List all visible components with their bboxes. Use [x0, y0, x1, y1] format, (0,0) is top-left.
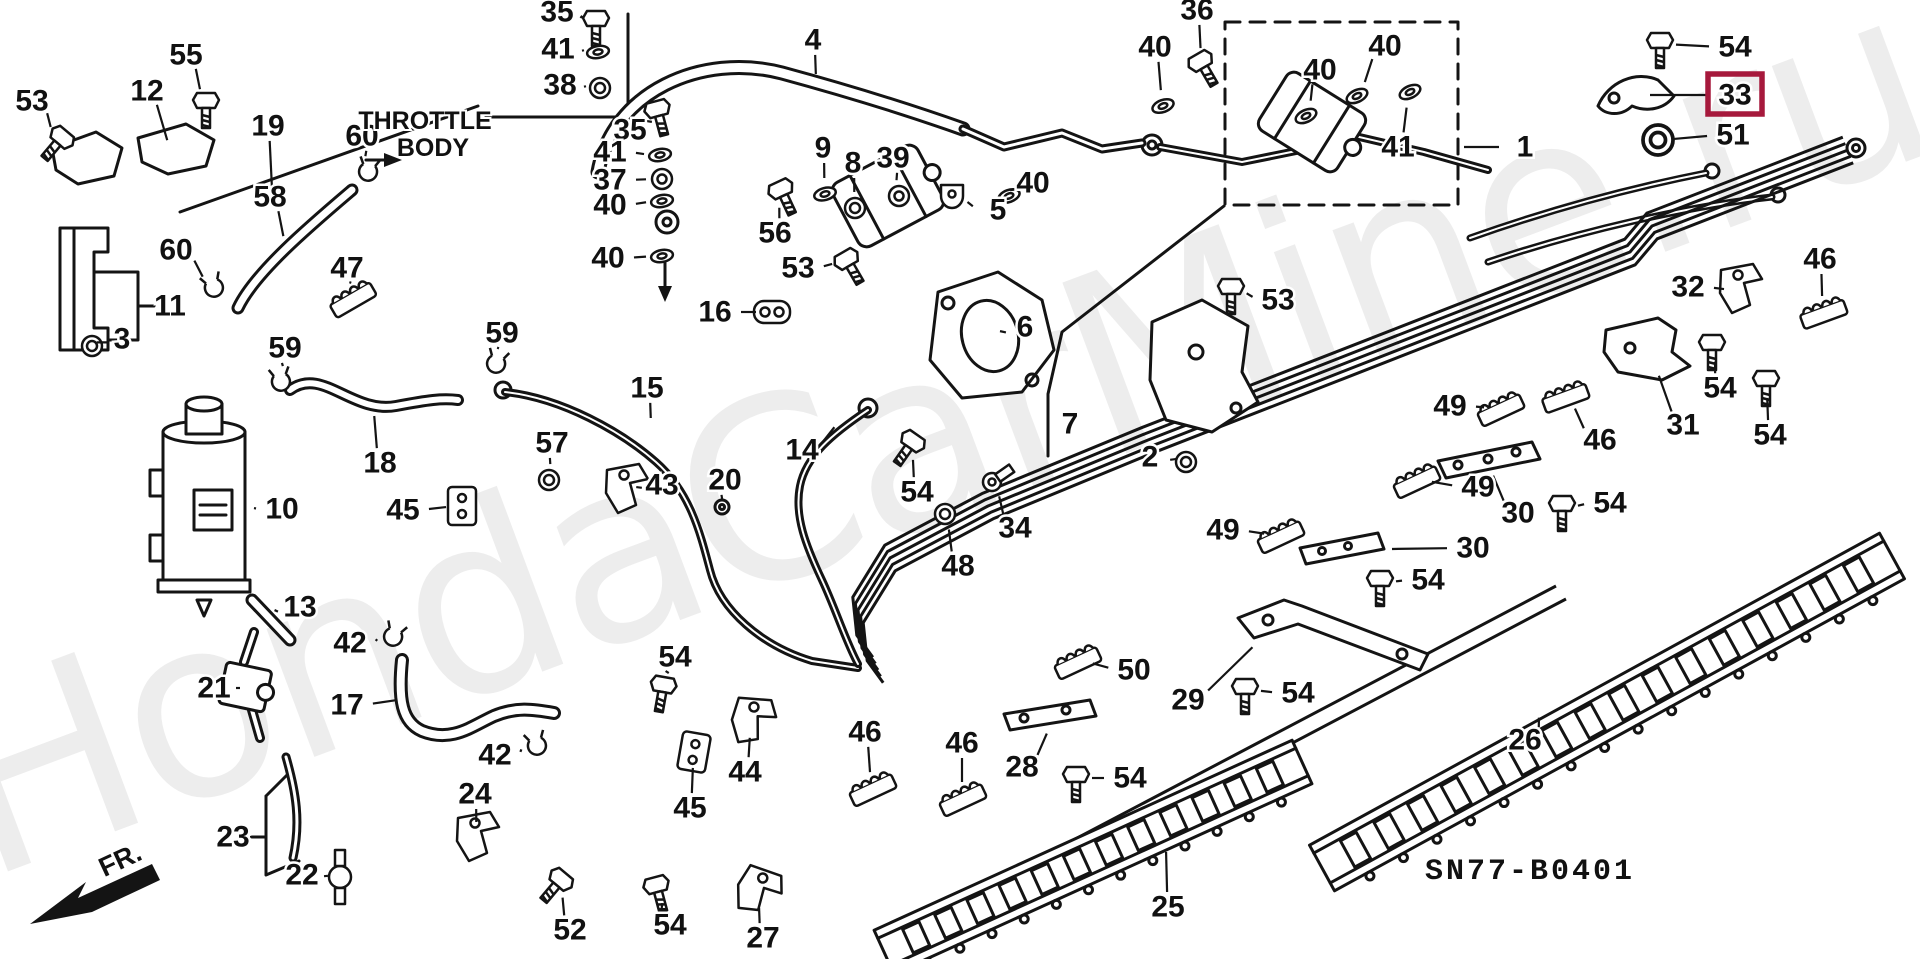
throttle-body-label-line2: BODY: [397, 134, 470, 162]
part-icon-nut: [889, 186, 909, 206]
part-callout-31[interactable]: 31: [1666, 409, 1699, 442]
part-callout-17[interactable]: 17: [330, 689, 363, 722]
diagram-canvas: HondaCarMine.ru: [0, 0, 1920, 959]
leader-line: [634, 257, 646, 258]
part-callout-54[interactable]: 54: [1113, 762, 1147, 795]
part-callout-46[interactable]: 46: [945, 727, 978, 760]
part-callout-29[interactable]: 29: [1171, 684, 1204, 717]
part-callout-40[interactable]: 40: [591, 242, 624, 275]
part-callout-2[interactable]: 2: [1142, 441, 1159, 474]
part-icon-grommet: [1643, 125, 1673, 155]
leader-line: [1261, 691, 1272, 692]
part-callout-39[interactable]: 39: [876, 142, 909, 175]
part-callout-56[interactable]: 56: [758, 217, 791, 250]
part-callout-53[interactable]: 53: [15, 85, 48, 118]
part-callout-15[interactable]: 15: [630, 372, 663, 405]
part-callout-54[interactable]: 54: [1718, 31, 1752, 64]
part-callout-6[interactable]: 6: [1017, 311, 1034, 344]
part-callout-60[interactable]: 60: [159, 234, 192, 267]
part-callout-57[interactable]: 57: [535, 427, 568, 460]
part-icon-nut: [652, 169, 672, 189]
part-callout-54[interactable]: 54: [653, 909, 687, 942]
leader-line: [581, 16, 583, 18]
leader-line: [1767, 398, 1768, 420]
leader-line: [1578, 504, 1584, 505]
part-callout-5[interactable]: 5: [990, 194, 1007, 227]
part-callout-19[interactable]: 19: [251, 110, 284, 143]
part-callout-46[interactable]: 46: [848, 716, 881, 749]
part-callout-11[interactable]: 11: [154, 290, 186, 323]
part-callout-3[interactable]: 3: [114, 323, 131, 356]
part-callout-38[interactable]: 38: [543, 69, 576, 102]
part-icon-grommet: [845, 198, 865, 218]
leader-line: [1476, 407, 1484, 408]
part-callout-40[interactable]: 40: [1368, 30, 1401, 63]
part-callout-13[interactable]: 13: [283, 591, 316, 624]
part-callout-32[interactable]: 32: [1671, 271, 1704, 304]
part-callout-48[interactable]: 48: [941, 550, 974, 583]
leader-line: [1396, 581, 1402, 582]
part-callout-52[interactable]: 52: [553, 914, 586, 947]
part-callout-24[interactable]: 24: [458, 778, 492, 811]
part-callout-42[interactable]: 42: [478, 739, 511, 772]
part-icon-clamp: [941, 185, 963, 208]
part-callout-50[interactable]: 50: [1117, 654, 1150, 687]
part-callout-45[interactable]: 45: [673, 792, 706, 825]
part-callout-44[interactable]: 44: [728, 756, 762, 789]
part-icon-grommet: [590, 78, 610, 98]
part-callout-49[interactable]: 49: [1461, 471, 1494, 504]
part-icon-grommet: [82, 336, 102, 356]
leader-line: [582, 50, 584, 51]
part-callout-46[interactable]: 46: [1583, 424, 1616, 457]
leader-line: [1392, 548, 1447, 549]
part-callout-10[interactable]: 10: [265, 493, 298, 526]
part-callout-34[interactable]: 34: [998, 512, 1032, 545]
leader-line: [692, 768, 693, 793]
leader-line: [275, 610, 278, 612]
part-callout-1[interactable]: 1: [1517, 131, 1534, 164]
part-callout-54[interactable]: 54: [900, 476, 934, 509]
part-callout-54[interactable]: 54: [1411, 564, 1445, 597]
part-callout-27[interactable]: 27: [746, 922, 779, 955]
part-callout-54[interactable]: 54: [1593, 487, 1627, 520]
part-callout-12[interactable]: 12: [130, 75, 163, 108]
part-callout-54[interactable]: 54: [1281, 677, 1315, 710]
leader-line: [636, 487, 642, 488]
part-callout-16[interactable]: 16: [698, 296, 731, 329]
leader-line: [520, 749, 521, 752]
parts-diagram: HondaCarMine.ru: [0, 0, 1920, 959]
part-callout-43[interactable]: 43: [645, 469, 678, 502]
part-callout-9[interactable]: 9: [815, 132, 832, 165]
leader-line: [1166, 852, 1167, 892]
leader-line: [376, 639, 377, 641]
leader-line: [1714, 288, 1724, 289]
part-callout-40[interactable]: 40: [1016, 167, 1049, 200]
part-icon-dgrommet: [754, 301, 790, 323]
part-callout-8[interactable]: 8: [845, 147, 862, 180]
part-icon-grommet: [539, 470, 559, 490]
part-callout-25[interactable]: 25: [1151, 891, 1184, 924]
part-callout-26[interactable]: 26: [1508, 724, 1541, 757]
part-callout-40[interactable]: 40: [1303, 54, 1336, 87]
part-callout-41[interactable]: 41: [1381, 131, 1414, 164]
part-callout-54[interactable]: 54: [1703, 372, 1737, 405]
throttle-body-label-line1: THROTTLE: [358, 107, 491, 135]
part-callout-45[interactable]: 45: [386, 494, 419, 527]
part-callout-21[interactable]: 21: [197, 672, 230, 705]
part-callout-47[interactable]: 47: [330, 252, 363, 285]
part-callout-22[interactable]: 22: [285, 859, 318, 892]
part-callout-4[interactable]: 4: [805, 24, 822, 57]
leader-line: [1821, 274, 1822, 296]
part-callout-40[interactable]: 40: [593, 189, 626, 222]
part-callout-42[interactable]: 42: [333, 627, 366, 660]
leader-line: [815, 55, 816, 74]
part-icon-block: [677, 731, 711, 773]
leader-line: [1000, 331, 1006, 332]
part-callout-30[interactable]: 30: [1501, 497, 1534, 530]
part-callout-40[interactable]: 40: [1138, 31, 1171, 64]
part-callout-49[interactable]: 49: [1433, 390, 1466, 423]
part-callout-36[interactable]: 36: [1180, 0, 1213, 27]
part-callout-53[interactable]: 53: [781, 252, 814, 285]
part-callout-41[interactable]: 41: [541, 33, 574, 66]
part-callout-54[interactable]: 54: [1753, 419, 1787, 452]
leader-line: [650, 403, 651, 418]
part-callout-46[interactable]: 46: [1803, 243, 1836, 276]
part-callout-59[interactable]: 59: [485, 317, 518, 350]
part-callout-33[interactable]: 33: [1718, 79, 1751, 112]
part-callout-23[interactable]: 23: [216, 821, 249, 854]
part-callout-14[interactable]: 14: [785, 434, 819, 467]
leader-line: [584, 86, 586, 87]
leader-line: [1199, 25, 1200, 48]
leader-line: [749, 738, 750, 757]
part-callout-53[interactable]: 53: [1261, 284, 1294, 317]
part-callout-7[interactable]: 7: [1062, 408, 1079, 441]
part-callout-54[interactable]: 54: [658, 641, 692, 674]
part-callout-30[interactable]: 30: [1456, 532, 1489, 565]
canister-part10: [150, 397, 250, 616]
leader-line: [1170, 459, 1176, 460]
part-callout-55[interactable]: 55: [169, 39, 202, 72]
diagram-code: SN77-B0401: [1425, 855, 1635, 889]
part-callout-58[interactable]: 58: [253, 181, 286, 214]
part-icon-block: [448, 487, 476, 525]
part-callout-20[interactable]: 20: [708, 464, 741, 497]
leader-line: [636, 153, 644, 154]
part-callout-35[interactable]: 35: [540, 0, 573, 29]
part-callout-51[interactable]: 51: [1716, 119, 1749, 152]
part-callout-28[interactable]: 28: [1005, 751, 1038, 784]
part-callout-59[interactable]: 59: [268, 332, 301, 365]
part-callout-49[interactable]: 49: [1206, 514, 1239, 547]
part-icon-grommet: [1176, 452, 1196, 472]
part-icon-grommet: [935, 504, 955, 524]
part-callout-18[interactable]: 18: [363, 447, 396, 480]
